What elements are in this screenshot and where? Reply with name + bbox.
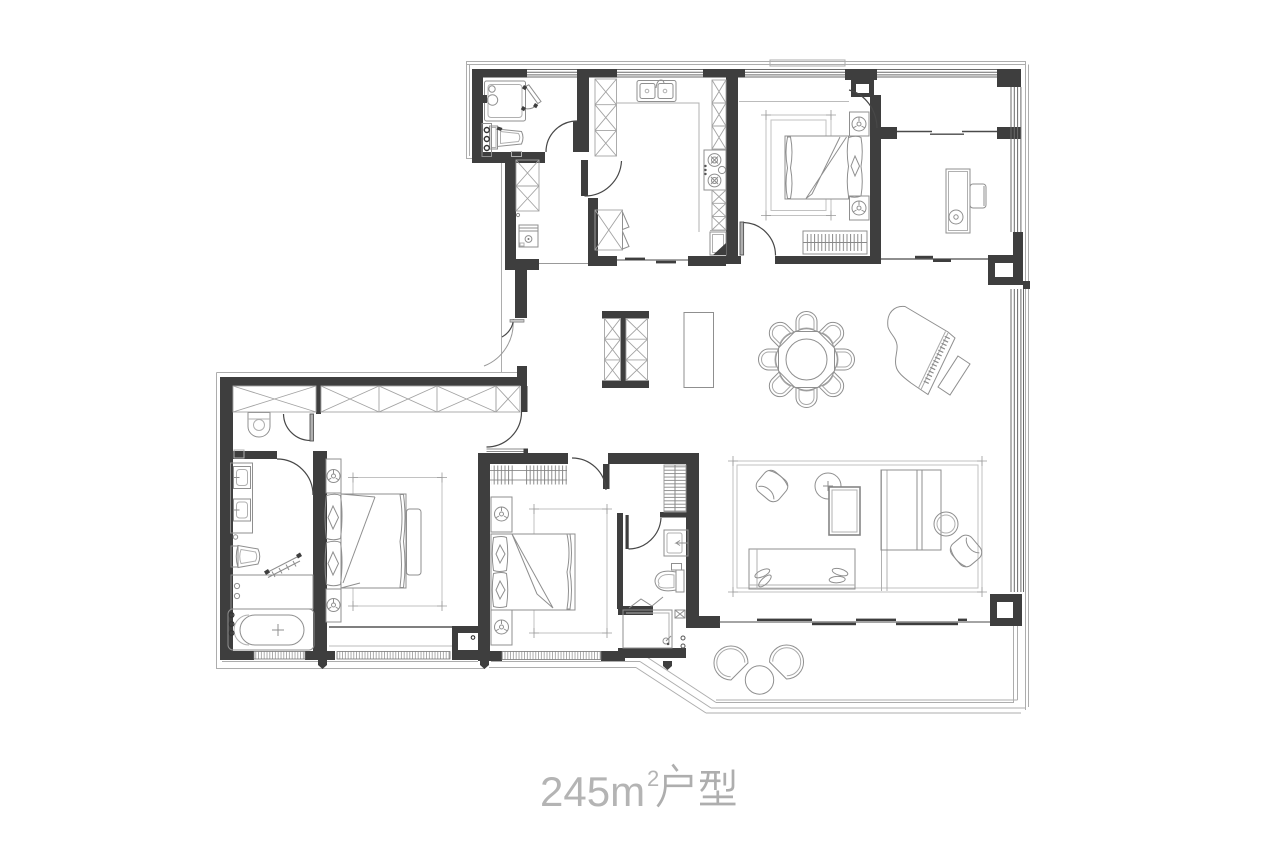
svg-text:245m: 245m	[540, 768, 645, 815]
svg-text:2: 2	[647, 766, 659, 791]
